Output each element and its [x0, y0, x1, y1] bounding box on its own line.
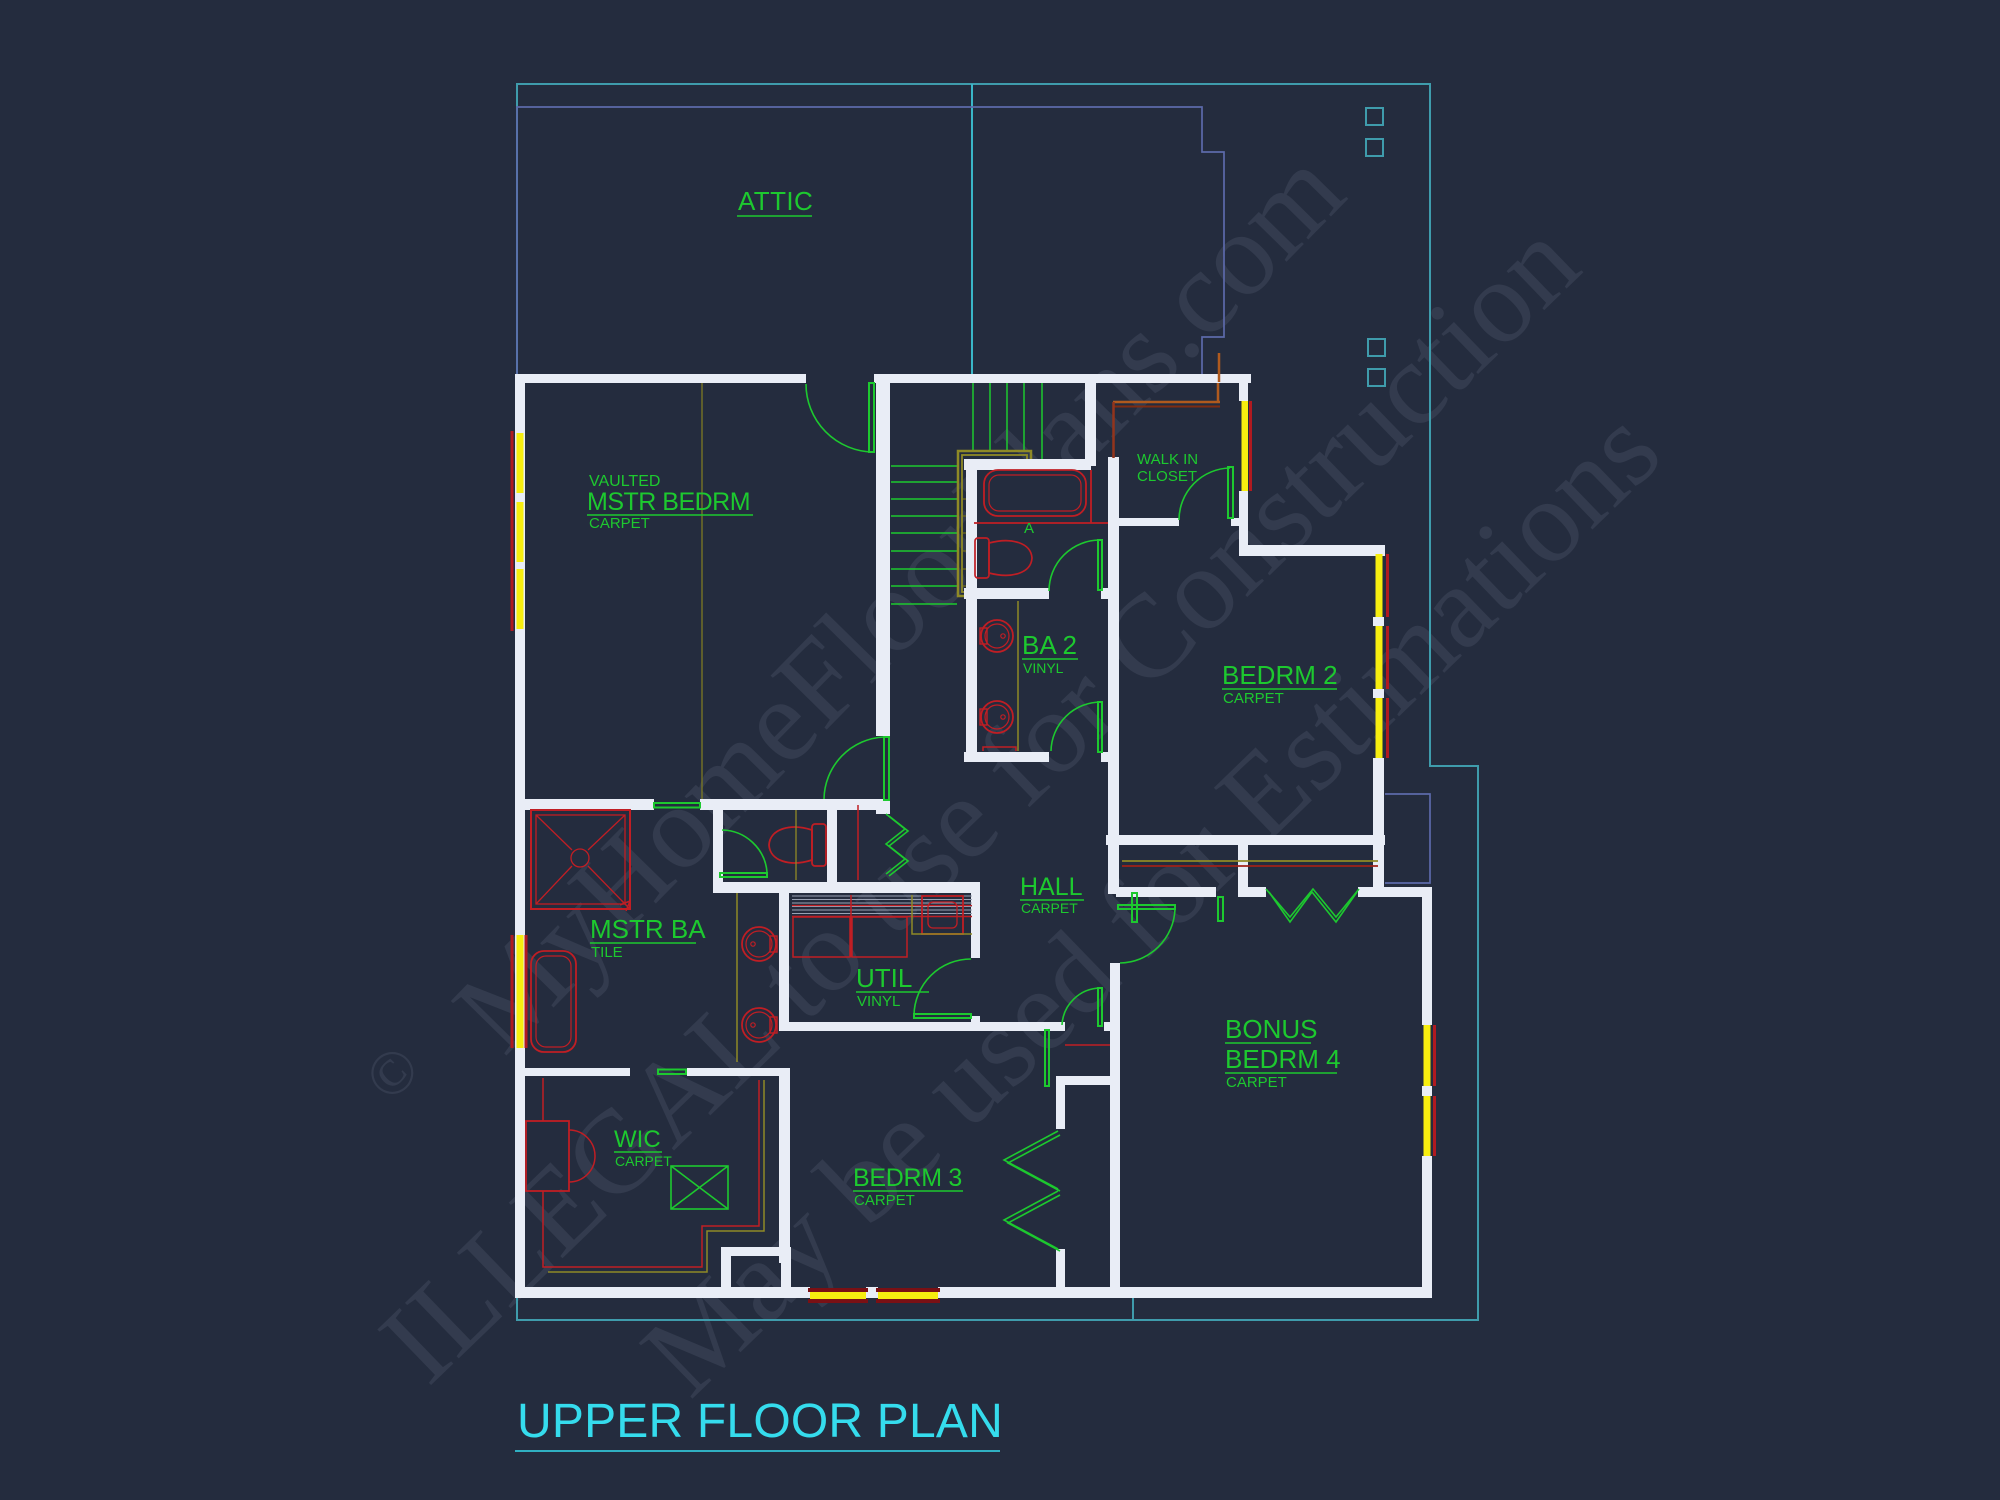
svg-text:A: A	[1024, 520, 1034, 537]
svg-text:UPPER FLOOR PLAN: UPPER FLOOR PLAN	[517, 1395, 1003, 1448]
svg-text:MSTR BEDRM: MSTR BEDRM	[587, 488, 750, 516]
svg-text:WIC: WIC	[614, 1126, 661, 1153]
svg-text:VINYL: VINYL	[857, 993, 900, 1010]
svg-text:WALK IN: WALK IN	[1137, 451, 1198, 468]
svg-text:CARPET: CARPET	[615, 1153, 672, 1169]
svg-text:UTIL: UTIL	[856, 963, 912, 993]
svg-text:CARPET: CARPET	[1223, 690, 1284, 707]
svg-text:CARPET: CARPET	[1226, 1074, 1287, 1091]
svg-text:TILE: TILE	[591, 944, 623, 961]
svg-text:BEDRM 4: BEDRM 4	[1225, 1044, 1341, 1074]
svg-text:BEDRM 3: BEDRM 3	[853, 1164, 962, 1192]
svg-text:VINYL: VINYL	[1023, 660, 1064, 676]
svg-text:MSTR BA: MSTR BA	[590, 914, 706, 944]
svg-text:CARPET: CARPET	[1021, 900, 1078, 916]
svg-text:ATTIC: ATTIC	[738, 186, 813, 216]
svg-text:CARPET: CARPET	[854, 1192, 915, 1209]
svg-text:BEDRM 2: BEDRM 2	[1222, 660, 1338, 690]
svg-text:CLOSET.: CLOSET.	[1137, 468, 1200, 485]
svg-text:HALL: HALL	[1020, 873, 1083, 901]
svg-text:CARPET: CARPET	[589, 515, 650, 532]
svg-text:BA 2: BA 2	[1022, 630, 1077, 660]
svg-text:BONUS: BONUS	[1225, 1014, 1317, 1044]
